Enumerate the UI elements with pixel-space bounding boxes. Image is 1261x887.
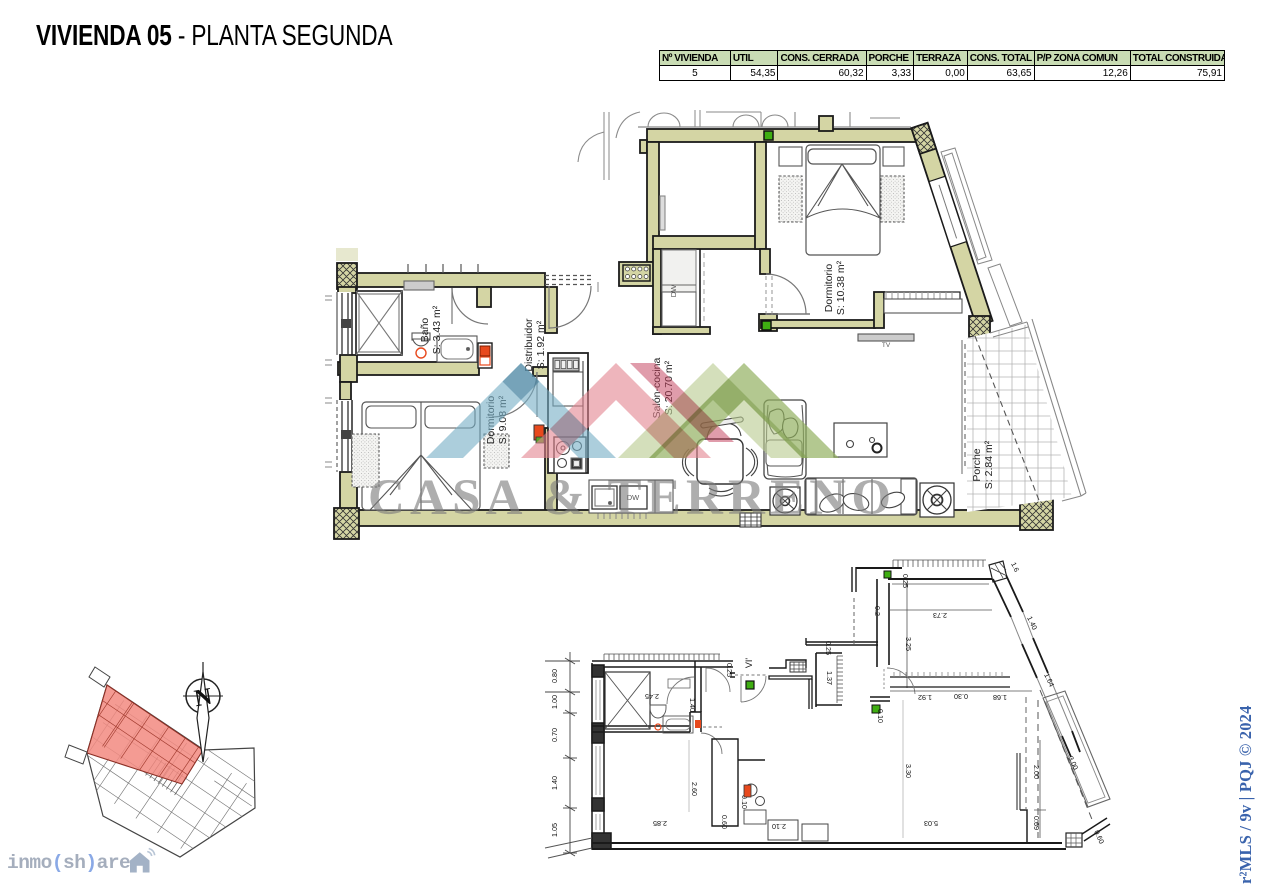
- svg-text:S: 3.43 m²: S: 3.43 m²: [431, 305, 443, 354]
- svg-text:1.37: 1.37: [825, 671, 834, 685]
- svg-text:1.40: 1.40: [1025, 615, 1039, 631]
- svg-text:S: 2.84 m²: S: 2.84 m²: [983, 440, 995, 489]
- svg-text:Porche: Porche: [971, 448, 983, 481]
- svg-text:2.10: 2.10: [772, 822, 786, 831]
- svg-text:0.25: 0.25: [901, 574, 910, 588]
- svg-text:Distribuidor: Distribuidor: [523, 318, 535, 372]
- svg-text:0.2: 0.2: [873, 606, 882, 616]
- svg-text:5.03: 5.03: [924, 819, 938, 828]
- svg-text:0.60: 0.60: [720, 815, 729, 829]
- svg-text:1.6: 1.6: [1009, 561, 1020, 573]
- svg-text:2.60: 2.60: [690, 782, 699, 796]
- svg-text:2.85: 2.85: [653, 819, 667, 828]
- svg-text:1.92: 1.92: [918, 693, 932, 702]
- svg-text:2.45: 2.45: [645, 692, 659, 701]
- svg-text:0.60: 0.60: [1092, 829, 1106, 845]
- svg-text:0.10: 0.10: [876, 709, 885, 723]
- svg-text:3.00: 3.00: [1066, 755, 1080, 771]
- svg-text:VI': VI': [744, 658, 754, 669]
- svg-text:0.30: 0.30: [954, 692, 968, 701]
- svg-text:0.25: 0.25: [725, 663, 734, 677]
- svg-text:0.69: 0.69: [1032, 816, 1041, 830]
- svg-text:2.73: 2.73: [933, 611, 947, 620]
- svg-text:1.64: 1.64: [1042, 672, 1056, 688]
- svg-text:0.25: 0.25: [824, 641, 833, 655]
- svg-text:0.80: 0.80: [550, 669, 559, 683]
- svg-text:3.25: 3.25: [904, 637, 913, 651]
- svg-text:Dormitorio: Dormitorio: [823, 264, 835, 313]
- svg-text:3.30: 3.30: [904, 764, 913, 778]
- svg-text:1.40: 1.40: [688, 698, 697, 712]
- svg-text:CASA & TERRENO: CASA & TERRENO: [368, 470, 895, 526]
- svg-text:0.70: 0.70: [550, 728, 559, 742]
- svg-text:S: 1.92 m²: S: 1.92 m²: [535, 320, 547, 369]
- svg-text:DW: DW: [669, 284, 678, 297]
- svg-text:1.00: 1.00: [550, 695, 559, 709]
- svg-text:S: 10.38 m²: S: 10.38 m²: [835, 260, 847, 315]
- svg-text:2.00: 2.00: [1032, 765, 1041, 779]
- svg-text:N: N: [192, 684, 214, 713]
- svg-text:1.05: 1.05: [550, 823, 559, 837]
- svg-text:Baño: Baño: [419, 318, 431, 343]
- svg-text:TV: TV: [882, 342, 891, 349]
- svg-text:1.40: 1.40: [550, 776, 559, 790]
- svg-text:1.68: 1.68: [993, 693, 1007, 702]
